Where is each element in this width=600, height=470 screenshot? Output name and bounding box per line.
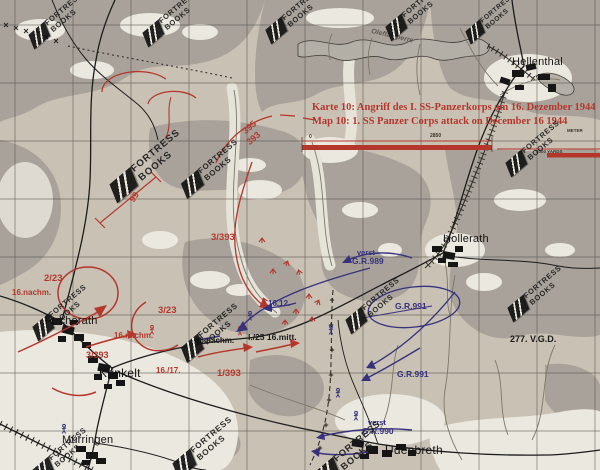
fortress-books-logo-icon (172, 449, 196, 470)
fortress-books-text: FORTRESSBOOKS (520, 119, 567, 162)
fortress-books-watermark: FORTRESSBOOKS (26, 0, 90, 49)
fortress-books-watermark: FORTRESSBOOKS (30, 283, 94, 341)
fortress-books-watermark: FORTRESSBOOKS (178, 138, 245, 199)
fortress-books-watermark: FORTRESSBOOKS (170, 415, 241, 470)
fortress-books-logo-icon (181, 170, 204, 200)
fortress-books-text: FORTRESSBOOKS (129, 127, 190, 183)
fortress-books-watermark: FORTRESSBOOKS (505, 264, 569, 322)
fortress-books-watermark: FORTRESSBOOKS (106, 127, 190, 202)
fortress-books-text: FORTRESSBOOKS (43, 0, 90, 34)
fortress-books-text: FORTRESSBOOKS (157, 0, 204, 32)
fortress-books-logo-icon (505, 150, 527, 178)
fortress-books-logo-icon (507, 295, 529, 323)
fortress-books-text: FORTRESSBOOKS (280, 0, 327, 29)
fortress-books-text: FORTRESSBOOKS (197, 138, 246, 183)
fortress-books-watermark: FORTRESSBOOKS (503, 119, 567, 177)
fortress-books-watermark: FORTRESSBOOKS (30, 426, 94, 470)
fortress-books-watermark: FORTRESSBOOKS (463, 0, 521, 44)
fortress-books-watermark: FORTRESSBOOKS (383, 0, 447, 41)
fortress-books-text: FORTRESSBOOKS (189, 415, 240, 462)
fortress-books-logo-icon (32, 314, 54, 342)
fortress-books-logo-icon (181, 334, 204, 364)
military-map: Karte 10: Angriff des I. SS-Panzerkorps … (0, 0, 600, 470)
fortress-books-watermark: FORTRESSBOOKS (343, 276, 407, 334)
fortress-books-watermark: FORTRESSBOOKS (140, 0, 204, 47)
fortress-books-text: FORTRESSBOOKS (47, 426, 94, 469)
fortress-books-text: FORTRESSBOOKS (479, 0, 521, 31)
fortress-books-text: FORTRESSBOOKS (332, 419, 390, 470)
fortress-books-watermark: FORTRESSBOOKS (178, 302, 245, 363)
fortress-books-text: FORTRESSBOOKS (197, 302, 246, 347)
fortress-books-watermark: FORTRESSBOOKS (310, 419, 390, 470)
watermark-layer: FORTRESSBOOKSFORTRESSBOOKSFORTRESSBOOKSF… (0, 0, 600, 470)
fortress-books-logo-icon (142, 20, 164, 48)
fortress-books-logo-icon (465, 19, 485, 44)
fortress-books-logo-icon (32, 457, 54, 470)
fortress-books-logo-icon (385, 14, 407, 42)
fortress-books-text: FORTRESSBOOKS (47, 283, 94, 326)
fortress-books-text: FORTRESSBOOKS (522, 264, 569, 307)
fortress-books-logo-icon (110, 167, 139, 204)
fortress-books-logo-icon (265, 17, 287, 45)
fortress-books-text: FORTRESSBOOKS (360, 276, 407, 319)
fortress-books-watermark: FORTRESSBOOKS (263, 0, 327, 44)
fortress-books-text: FORTRESSBOOKS (400, 0, 447, 26)
fortress-books-logo-icon (28, 22, 50, 50)
fortress-books-logo-icon (345, 307, 367, 335)
fortress-books-logo-icon (313, 457, 340, 470)
